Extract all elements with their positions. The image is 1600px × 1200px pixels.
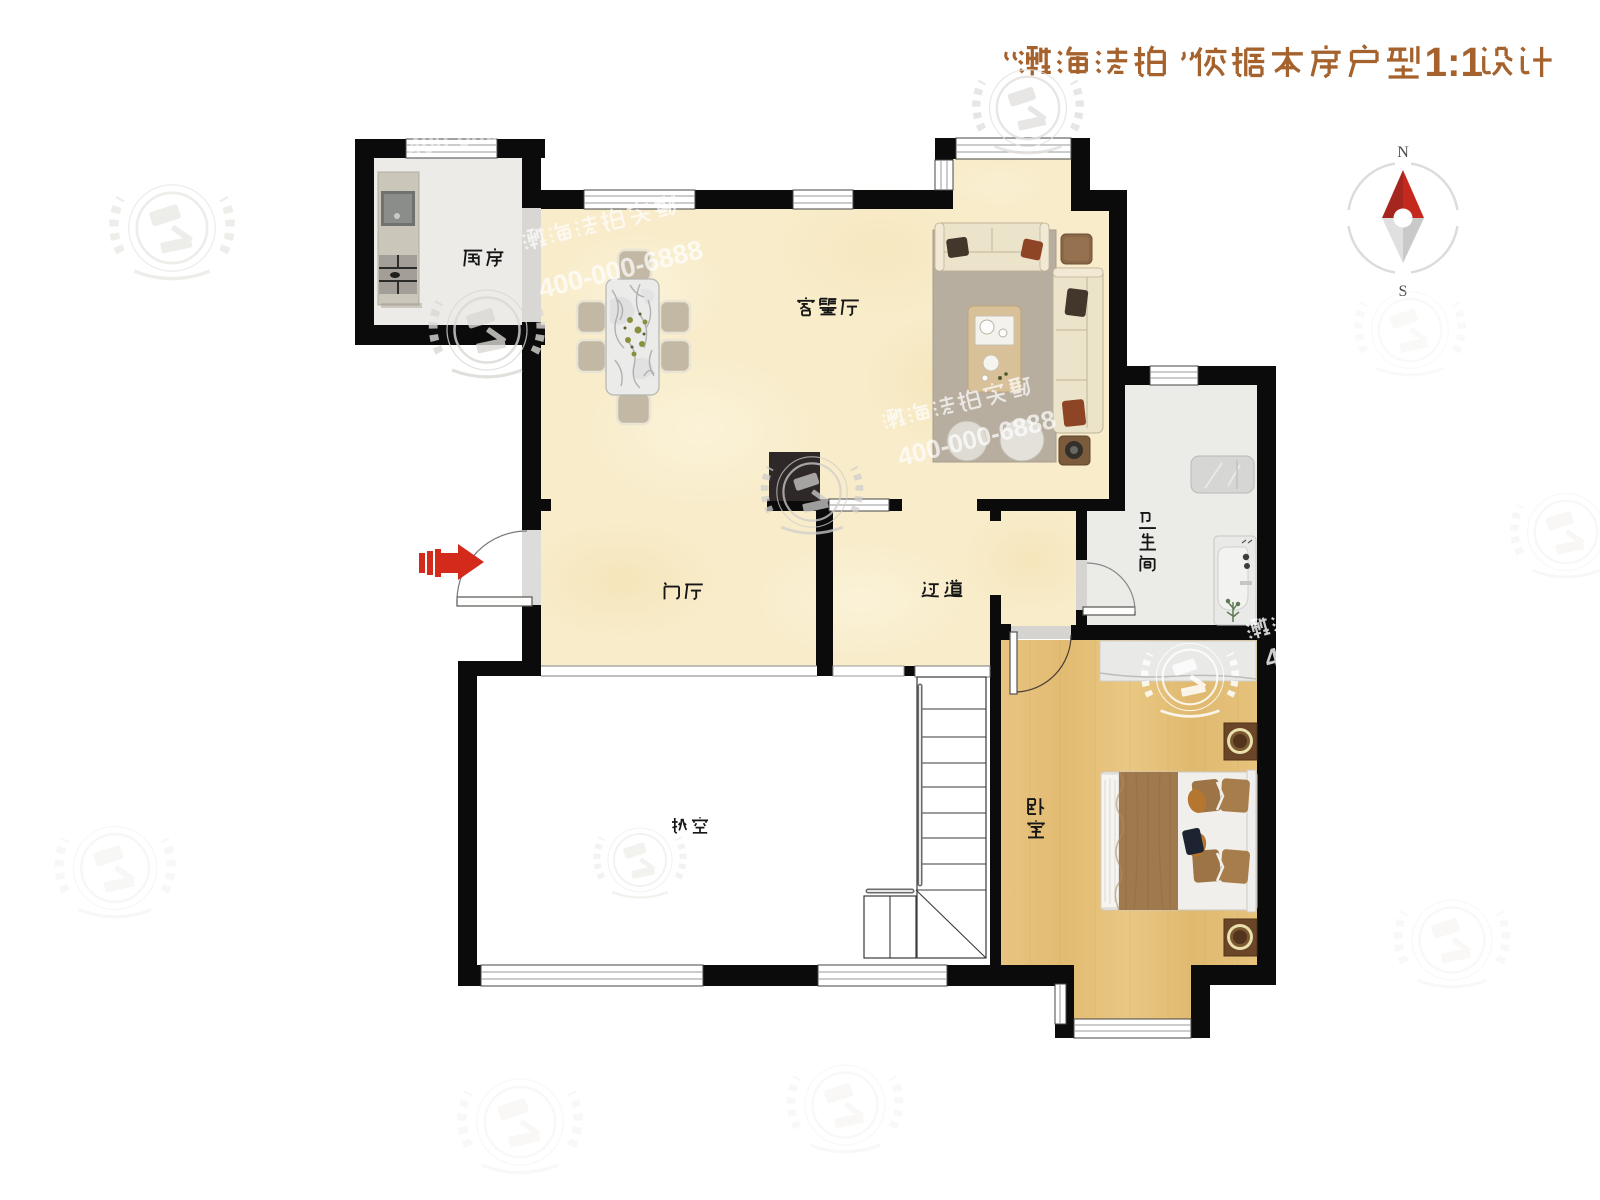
svg-text:N: N (1397, 144, 1409, 161)
svg-text:1:1: 1:1 (1424, 39, 1483, 85)
